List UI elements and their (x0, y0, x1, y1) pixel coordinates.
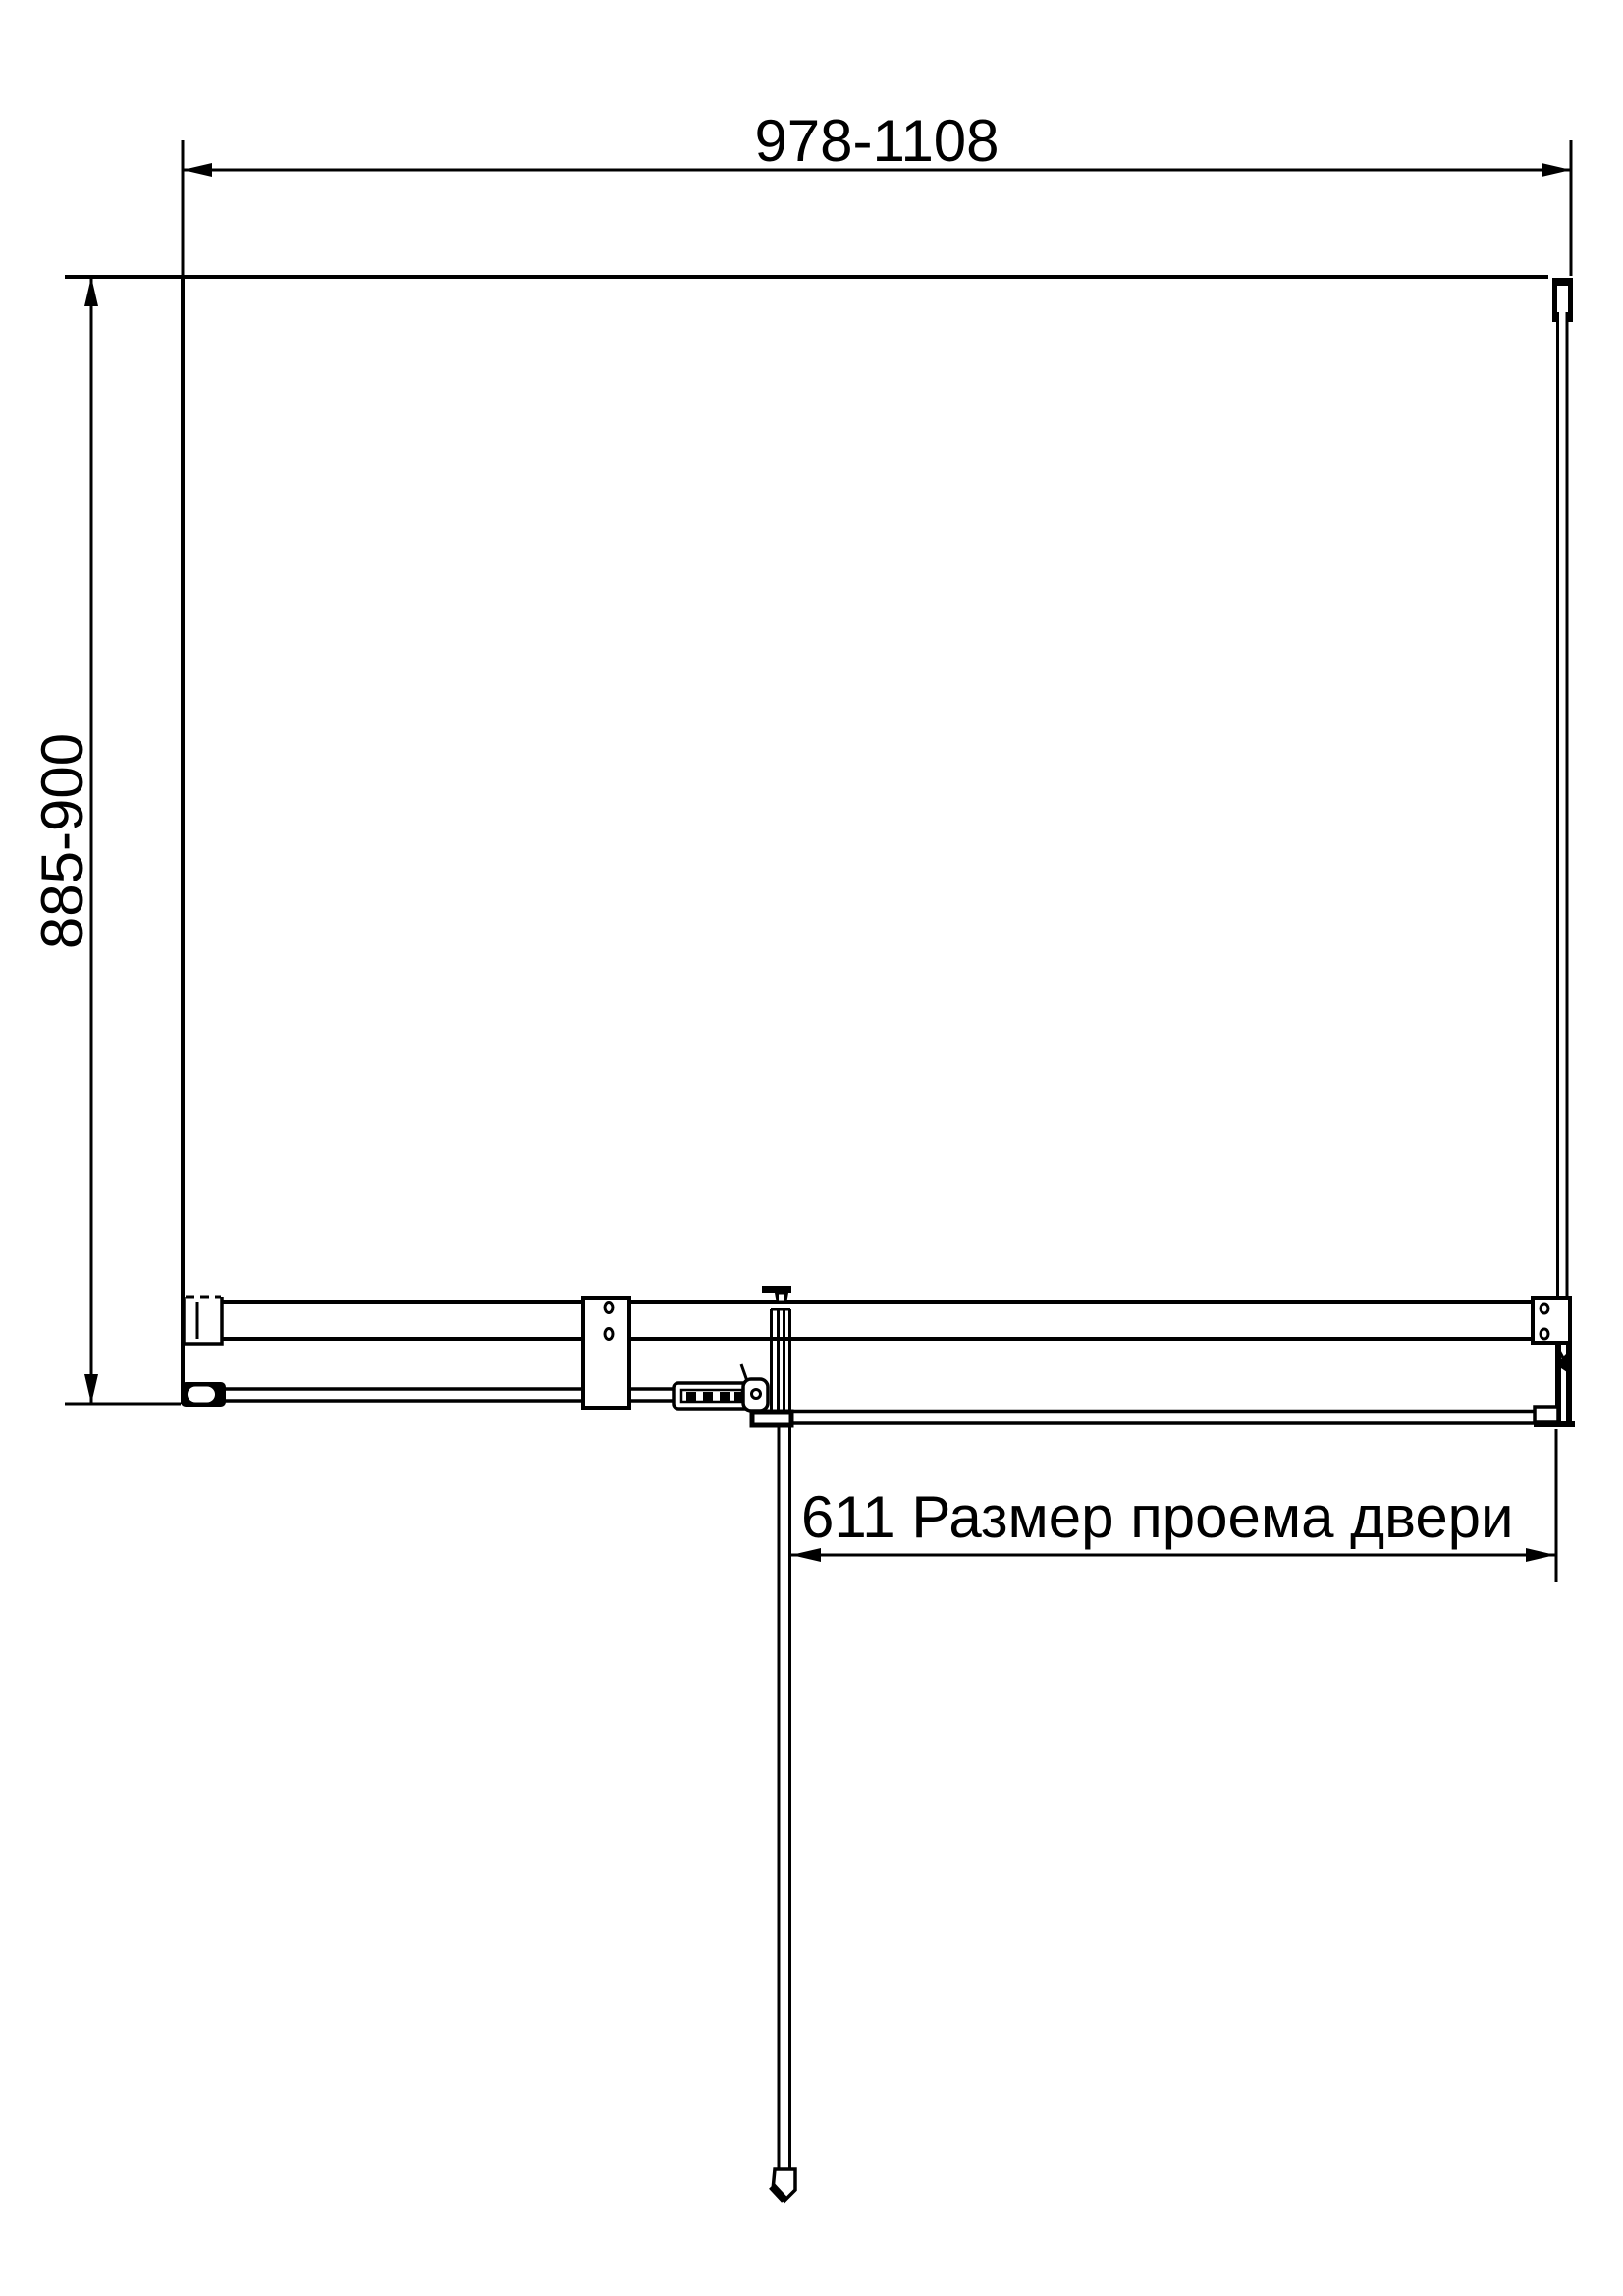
corner-bottom-bar (1534, 1421, 1575, 1427)
wall-bracket-left (184, 1297, 222, 1344)
width-dimension: 978-1108 (183, 108, 1571, 277)
arrow-right-icon (1526, 1548, 1555, 1562)
door-panel-open (772, 1425, 795, 2201)
wall-mount-lower-left (181, 1382, 226, 1407)
door-knob-bar (762, 1286, 791, 1293)
door-foot-block (752, 1412, 791, 1425)
clamp-tooth-2 (703, 1392, 713, 1401)
door-opening-dimension: 611 Размер проема двери (791, 1429, 1556, 1582)
wall-bracket-right (1533, 1298, 1570, 1343)
clamp-tooth-1 (686, 1392, 696, 1401)
arrow-left-icon (791, 1548, 821, 1562)
clamp-tooth-4 (734, 1392, 742, 1401)
arrow-up-icon (84, 277, 98, 306)
arrow-left-icon (183, 163, 212, 177)
door-opening-label: 611 Размер проема двери (801, 1484, 1514, 1550)
clamp-head (743, 1379, 768, 1411)
technical-drawing-page: 978-1108 885-900 (0, 0, 1623, 2296)
clamp-lever-line (741, 1364, 747, 1381)
depth-dimension-label: 885-900 (29, 733, 95, 949)
door-knob-notch (779, 1295, 784, 1301)
upper-rail (222, 1302, 1533, 1339)
wall-bracket-left-body (184, 1297, 222, 1344)
width-dimension-label: 978-1108 (754, 108, 999, 174)
arrow-right-icon (1542, 163, 1571, 177)
center-bracket (583, 1298, 629, 1408)
door-roller-clamp (674, 1364, 768, 1411)
rail-end-block (1535, 1407, 1558, 1422)
wall-mount-slot (188, 1387, 215, 1403)
clamp-tooth-3 (720, 1392, 730, 1401)
lower-rails (225, 1389, 1537, 1423)
depth-dimension: 885-900 (29, 277, 181, 1404)
enclosure-outline (65, 277, 1573, 1404)
arrow-down-icon (84, 1374, 98, 1404)
right-corner-assembly (1533, 1298, 1575, 1427)
center-bracket-plate (583, 1298, 629, 1408)
shower-enclosure-plan-drawing: 978-1108 885-900 (0, 0, 1623, 2296)
